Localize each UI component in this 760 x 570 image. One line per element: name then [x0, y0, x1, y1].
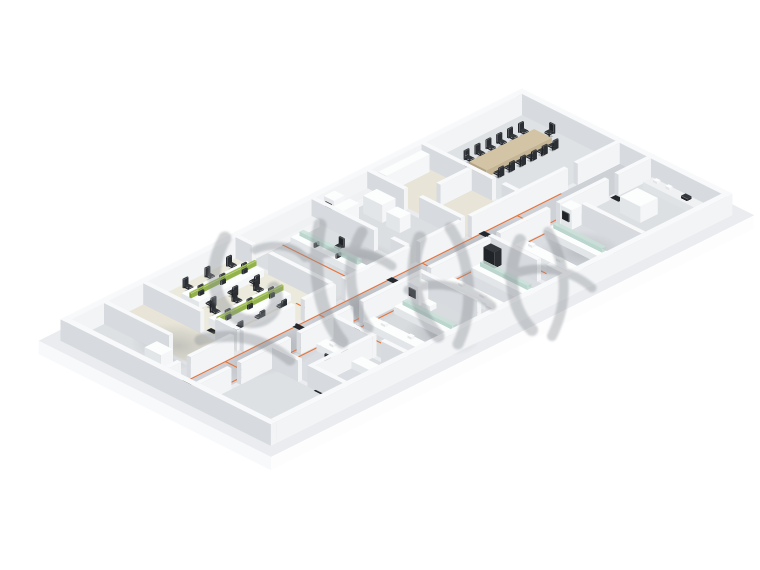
fume-hood-sash — [416, 290, 417, 299]
chair-back — [343, 238, 344, 248]
interior-wall — [537, 258, 541, 282]
interior-wall — [200, 310, 204, 334]
interior-wall — [492, 177, 496, 201]
chair-back — [554, 124, 555, 134]
fume-hood-sash — [569, 214, 570, 223]
floorplan-stage — [0, 0, 760, 570]
interior-wall — [373, 335, 377, 359]
interior-wall — [298, 359, 302, 383]
exterior-wall — [727, 194, 732, 218]
interior-wall — [374, 228, 378, 252]
interior-wall — [404, 187, 408, 211]
